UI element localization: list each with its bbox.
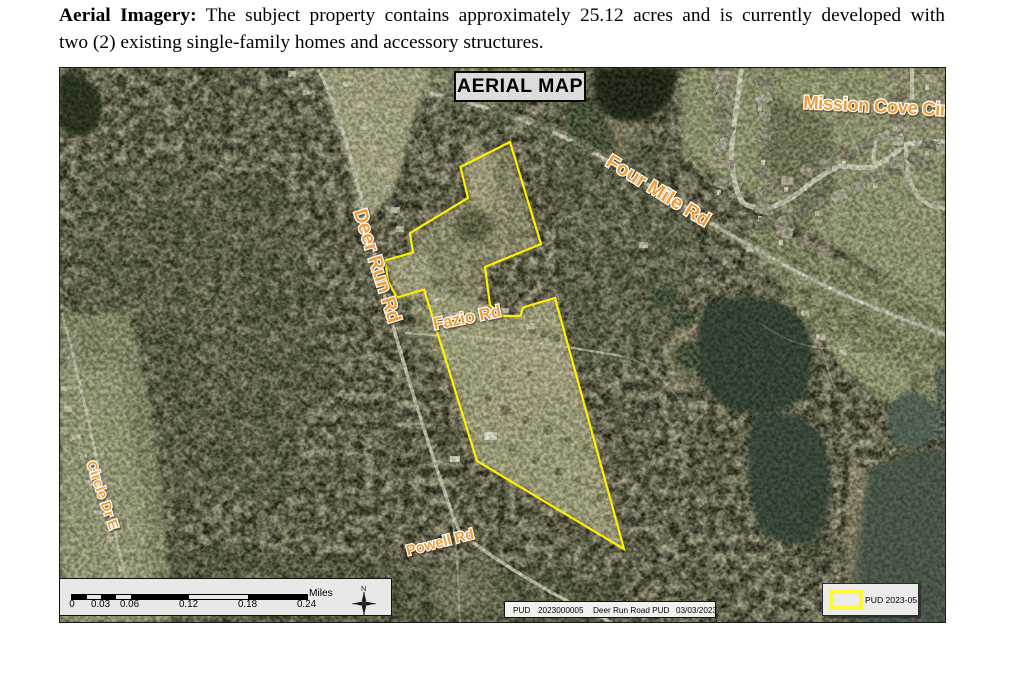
svg-text:N: N bbox=[361, 584, 366, 593]
